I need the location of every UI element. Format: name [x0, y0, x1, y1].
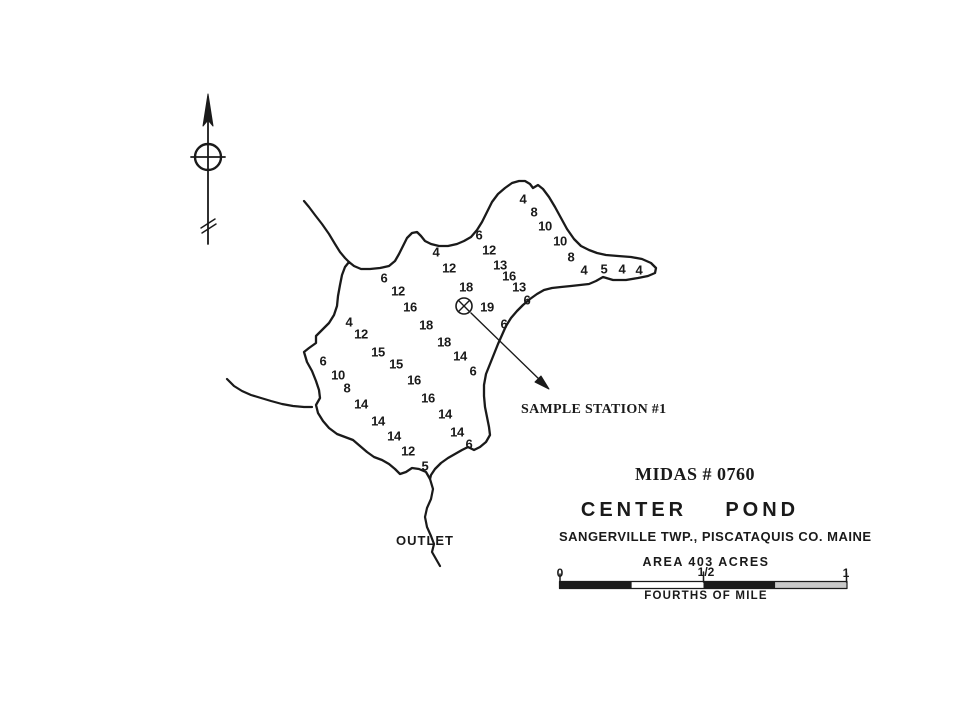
scale-caption: FOURTHS OF MILE	[556, 591, 856, 603]
depth-sounding: 12	[482, 243, 496, 258]
depth-sounding: 5	[422, 459, 429, 474]
depth-sounding: 18	[459, 280, 473, 295]
pond-location: SANGERVILLE TWP., PISCATAQUIS CO. MAINE	[559, 530, 859, 543]
scale-tick-label-half: 1/2	[691, 566, 721, 578]
outlet-stream	[425, 479, 440, 566]
depth-sounding: 8	[531, 205, 538, 220]
depth-sounding: 4	[520, 192, 527, 207]
inlet-stream-west	[227, 379, 312, 407]
depth-sounding: 16	[403, 300, 417, 315]
depth-sounding: 6	[320, 354, 327, 369]
depth-sounding: 15	[371, 345, 385, 360]
depth-sounding: 10	[538, 219, 552, 234]
scale-tick-label-one: 1	[831, 567, 861, 579]
depth-sounding: 14	[371, 414, 385, 429]
depth-sounding: 12	[354, 327, 368, 342]
pond-title: CENTER POND	[560, 500, 820, 520]
depth-sounding: 12	[442, 261, 456, 276]
depth-sounding: 16	[407, 373, 421, 388]
depth-sounding: 14	[387, 429, 401, 444]
sample-station-icon	[456, 298, 472, 314]
depth-sounding: 6	[476, 228, 483, 243]
depth-sounding: 5	[601, 262, 608, 277]
depth-sounding: 4	[346, 315, 353, 330]
depth-sounding: 14	[453, 349, 467, 364]
depth-sounding: 4	[619, 262, 626, 277]
depth-sounding: 4	[581, 263, 588, 278]
depth-sounding: 14	[438, 407, 452, 422]
depth-sounding: 19	[480, 300, 494, 315]
depth-sounding: 14	[450, 425, 464, 440]
depth-sounding: 10	[553, 234, 567, 249]
depth-sounding: 18	[419, 318, 433, 333]
depth-sounding: 15	[389, 357, 403, 372]
depth-sounding: 8	[344, 381, 351, 396]
depth-sounding: 6	[524, 293, 531, 308]
depth-sounding: 4	[433, 245, 440, 260]
scale-tick-label-zero: 0	[545, 567, 575, 579]
depth-sounding: 6	[470, 364, 477, 379]
sample-station-arrow	[471, 313, 549, 389]
depth-sounding: 12	[401, 444, 415, 459]
midas-number: MIDAS # 0760	[560, 465, 830, 483]
depth-sounding: 14	[354, 397, 368, 412]
depth-sounding: 6	[501, 317, 508, 332]
depth-sounding: 4	[636, 263, 643, 278]
depth-sounding: 8	[568, 250, 575, 265]
sample-station-label: SAMPLE STATION #1	[521, 403, 666, 417]
depth-sounding: 6	[466, 437, 473, 452]
depth-sounding: 6	[381, 271, 388, 286]
bathymetric-map-page: 4810108454464121213161361819612164121515…	[0, 0, 959, 719]
map-linework	[0, 0, 959, 719]
depth-sounding: 16	[421, 391, 435, 406]
inlet-stream-northwest	[304, 201, 350, 263]
north-arrow-icon	[191, 94, 225, 244]
outlet-label: OUTLET	[396, 534, 454, 547]
depth-sounding: 12	[391, 284, 405, 299]
depth-sounding: 18	[437, 335, 451, 350]
